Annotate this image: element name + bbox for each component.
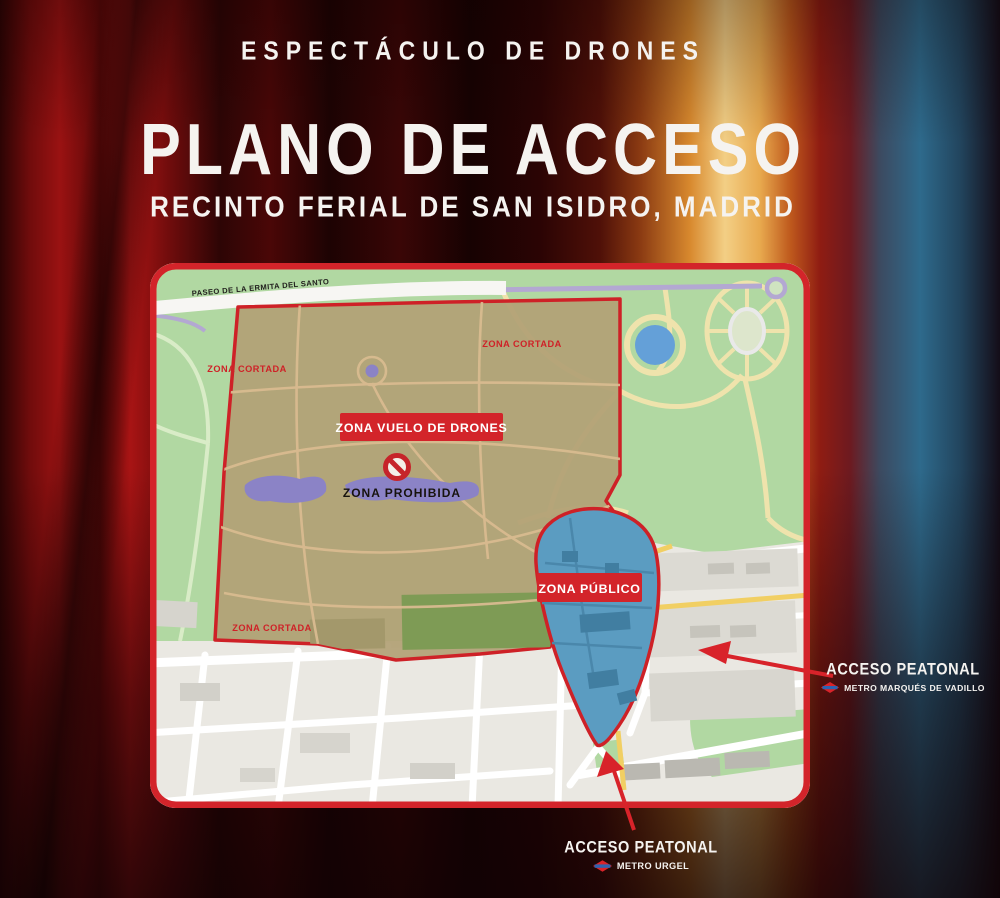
page-subtitle: RECINTO FERIAL DE SAN ISIDRO, MADRID: [0, 190, 946, 224]
metro-logo-icon: [821, 682, 839, 693]
access-map: PASEO DE LA ERMITA DEL SANTO: [150, 263, 810, 808]
access-right-title: ACCESO PEATONAL: [806, 661, 1000, 679]
kicker-text: ESPECTÁCULO DE DRONES: [0, 36, 946, 66]
access-point-right: ACCESO PEATONAL METRO MARQUÉS DE VADILLO: [806, 662, 1000, 693]
zona-cortada-label-bottom: ZONA CORTADA: [232, 623, 312, 633]
prohibited-zone-label: ZONA PROHIBIDA: [343, 486, 461, 500]
zona-cortada-label-top: ZONA CORTADA: [482, 339, 562, 349]
access-bottom-title: ACCESO PEATONAL: [536, 839, 746, 857]
park-pond: [627, 317, 683, 373]
drone-zone-badge-label: ZONA VUELO DE DRONES: [336, 421, 508, 435]
poster: ESPECTÁCULO DE DRONES PLANO DE ACCESO RE…: [0, 0, 1000, 898]
zona-cortada-label-left: ZONA CORTADA: [207, 364, 287, 374]
no-entry-icon: [386, 456, 409, 479]
page-title: PLANO DE ACCESO: [0, 108, 946, 191]
access-bottom-station: METRO URGEL: [617, 861, 689, 871]
access-right-station: METRO MARQUÉS DE VADILLO: [844, 683, 985, 693]
drone-zone-badge: ZONA VUELO DE DRONES: [336, 413, 508, 441]
metro-logo-icon: [593, 860, 612, 872]
access-point-bottom: ACCESO PEATONAL METRO URGEL: [536, 840, 746, 872]
public-zone-badge-label: ZONA PÚBLICO: [538, 581, 640, 596]
map-canvas: PASEO DE LA ERMITA DEL SANTO: [150, 263, 810, 808]
public-zone-badge: ZONA PÚBLICO: [537, 573, 642, 602]
